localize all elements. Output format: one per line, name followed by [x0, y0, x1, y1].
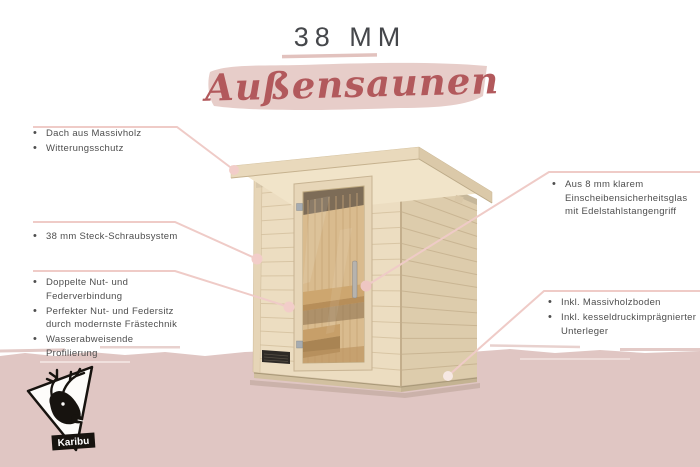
feature-item: Wasserabweisende Profilierung [33, 333, 185, 360]
feature-item: Aus 8 mm klarem Einscheibensicherheitsgl… [552, 178, 684, 219]
infographic-canvas: Karibu 38 MM Außensaunen Dach aus Massiv… [0, 0, 700, 467]
feature-item: Dach aus Massivholz [33, 127, 203, 141]
sauna-illustration [231, 147, 492, 398]
callout-group-floor: Inkl. Massivholzboden Inkl. kesseldrucki… [548, 296, 698, 340]
feature-item: Doppelte Nut- und Federverbindung [33, 276, 185, 303]
feature-item: Witterungsschutz [33, 142, 203, 156]
callout-group-tongue-groove: Doppelte Nut- und Federverbindung Perfek… [33, 276, 185, 362]
logo-brand-text: Karibu [57, 436, 89, 449]
page-title: 38 MM [0, 22, 700, 53]
feature-item: Inkl. kesseldruckimprägnierter Unterlege… [548, 311, 698, 338]
door-hinge-bottom [297, 341, 303, 348]
callout-group-glass-door: Aus 8 mm klarem Einscheibensicherheitsgl… [552, 178, 684, 220]
door-hinge-top [297, 204, 303, 211]
vent-plate [262, 350, 290, 364]
feature-item: Perfekter Nut- und Federsitz durch moder… [33, 305, 185, 332]
logo-label: Karibu [51, 432, 95, 450]
feature-item: 38 mm Steck-Schraubsystem [33, 230, 213, 244]
door-handle [353, 261, 358, 298]
callout-group-roof: Dach aus Massivholz Witterungsschutz [33, 127, 203, 157]
sauna-glass-door [294, 176, 372, 371]
callout-group-screw-system: 38 mm Steck-Schraubsystem [33, 230, 213, 245]
banner-title: Außensaunen [204, 58, 495, 110]
feature-item: Inkl. Massivholzboden [548, 296, 698, 310]
